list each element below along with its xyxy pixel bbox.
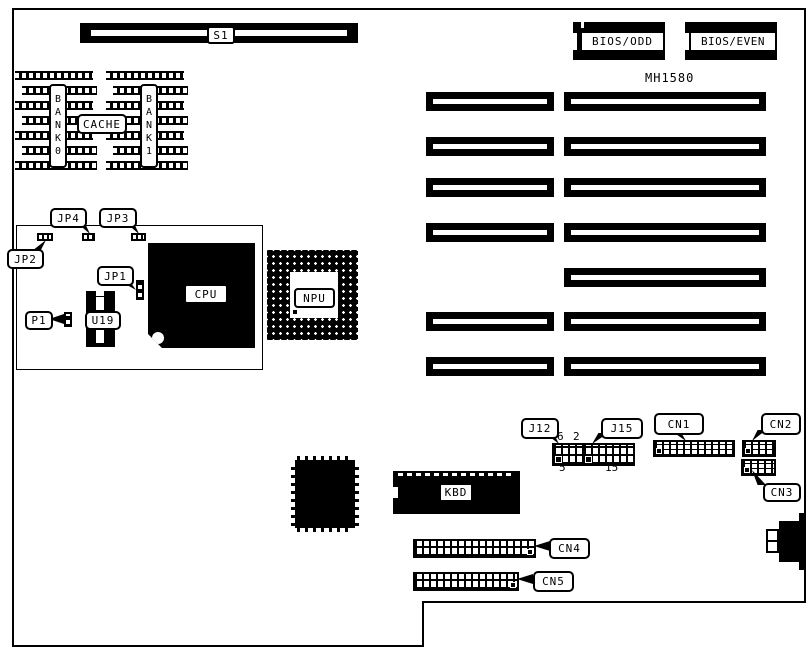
expansion-slot-right-2 <box>564 137 766 156</box>
keyboard-connector-pin <box>766 540 779 553</box>
bios-even-label: BIOS/EVEN <box>691 33 775 50</box>
chip-notch <box>393 487 398 498</box>
chip-notch <box>685 33 689 50</box>
p1-label: P1 <box>25 311 53 330</box>
j15-pin-number-top: 2 <box>573 431 580 442</box>
header-cn2 <box>742 440 776 457</box>
expansion-slot-right-1 <box>564 92 766 111</box>
jumper-jp2 <box>37 233 53 241</box>
jp3-label: JP3 <box>99 208 137 228</box>
cn3-label: CN3 <box>763 483 801 502</box>
dram-chip-row <box>15 71 93 80</box>
npu-pin1-dot <box>293 310 297 314</box>
bios-odd-label: BIOS/ODD <box>582 33 663 50</box>
expansion-slot-right-4 <box>564 223 766 242</box>
header-j12 <box>552 443 584 466</box>
pin1-marker <box>656 448 662 454</box>
u19-label: U19 <box>85 311 121 330</box>
dram-chip-row <box>106 71 184 80</box>
j12-label: J12 <box>521 418 559 439</box>
model-number: MH1580 <box>645 71 697 83</box>
jumper-jp4 <box>82 233 95 241</box>
expansion-slot-left-7 <box>426 357 554 376</box>
expansion-slot-left-1 <box>426 92 554 111</box>
header-cn4 <box>413 539 536 558</box>
npu-label: NPU <box>294 288 335 308</box>
chip-dashed-stripe <box>398 473 515 476</box>
jp1-label: JP1 <box>97 266 134 286</box>
jumper-jp1 <box>136 280 144 300</box>
kbd-label: KBD <box>441 485 471 500</box>
expansion-slot-right-7 <box>564 357 766 376</box>
pin1-marker <box>745 448 751 454</box>
pin1-notch <box>581 22 584 28</box>
socket-channel <box>96 297 104 310</box>
keyboard-connector-flange <box>799 513 805 570</box>
qfp-pins-bottom <box>297 528 353 532</box>
bank0-label: BANK0 <box>49 84 67 168</box>
cpu-label: CPU <box>185 285 227 303</box>
pin1-marker <box>510 582 516 588</box>
cn1-label: CN1 <box>654 413 704 435</box>
header-cn5 <box>413 572 519 591</box>
j15-pin-number-bottom: 15 <box>605 462 618 473</box>
pin1-marker <box>585 456 592 463</box>
jumper-jp3 <box>131 233 146 241</box>
bios-even-chip: BIOS/EVEN <box>685 22 777 60</box>
j15-label: J15 <box>601 418 643 439</box>
pin1-marker <box>744 467 750 473</box>
socket-notch <box>96 291 104 296</box>
cn2-label: CN2 <box>761 413 801 435</box>
cache-label: CACHE <box>77 114 127 134</box>
pin1-marker <box>527 549 533 555</box>
expansion-slot-left-3 <box>426 178 554 197</box>
expansion-slot-left-2 <box>426 137 554 156</box>
expansion-slot-right-3 <box>564 178 766 197</box>
jumper-p1 <box>64 312 72 327</box>
chip-notch <box>573 33 577 50</box>
jp4-label: JP4 <box>50 208 87 228</box>
expansion-slot-left-4 <box>426 223 554 242</box>
expansion-slot-right-6 <box>564 312 766 331</box>
socket-channel <box>96 329 104 343</box>
header-cn1 <box>653 440 735 457</box>
expansion-slot-left-6 <box>426 312 554 331</box>
motherboard-diagram: S1 BANK0 BANK1 CACHE BIOS/ODD BIOS/EVEN … <box>0 0 812 654</box>
j12-pin-number-bottom: 5 <box>559 462 566 473</box>
jp2-label: JP2 <box>7 249 44 269</box>
header-cn3 <box>741 459 776 476</box>
bios-odd-chip: BIOS/ODD <box>573 22 665 60</box>
qfp-pins-right <box>355 462 359 526</box>
qfp-chip <box>295 460 355 528</box>
cn5-label: CN5 <box>533 571 574 592</box>
cn4-label: CN4 <box>549 538 590 559</box>
kbd-controller-chip: KBD <box>393 471 520 514</box>
expansion-slot-right-5 <box>564 268 766 287</box>
bank1-label: BANK1 <box>140 84 158 168</box>
s1-label: S1 <box>207 26 235 44</box>
